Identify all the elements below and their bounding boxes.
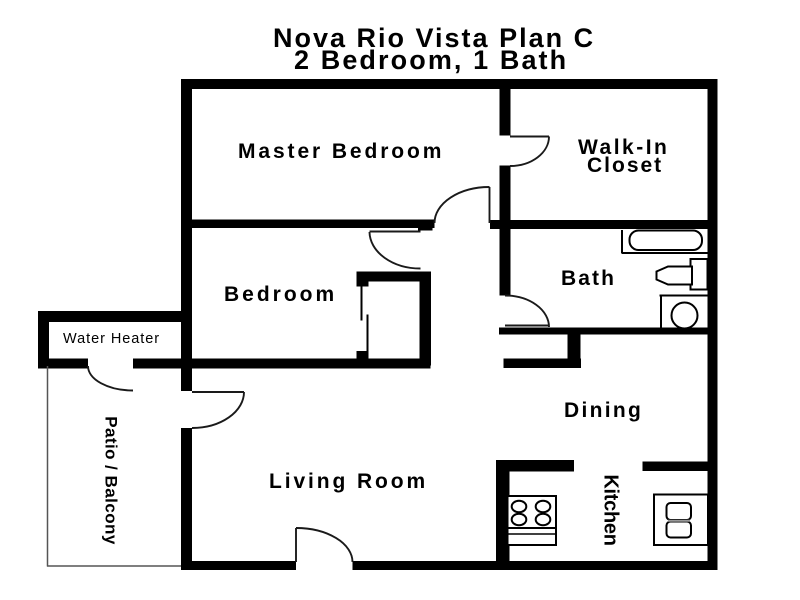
svg-text:Water Heater: Water Heater — [63, 331, 160, 347]
svg-text:Bedroom: Bedroom — [224, 283, 337, 306]
svg-text:Master Bedroom: Master Bedroom — [238, 140, 444, 163]
svg-text:Kitchen: Kitchen — [600, 474, 622, 545]
svg-text:Living Room: Living Room — [269, 470, 428, 493]
svg-text:Patio / Balcony: Patio / Balcony — [102, 416, 121, 545]
svg-text:2 Bedroom, 1 Bath: 2 Bedroom, 1 Bath — [294, 45, 568, 75]
svg-text:Closet: Closet — [587, 154, 663, 177]
svg-text:Bath: Bath — [561, 267, 616, 290]
svg-text:Dining: Dining — [564, 399, 643, 422]
